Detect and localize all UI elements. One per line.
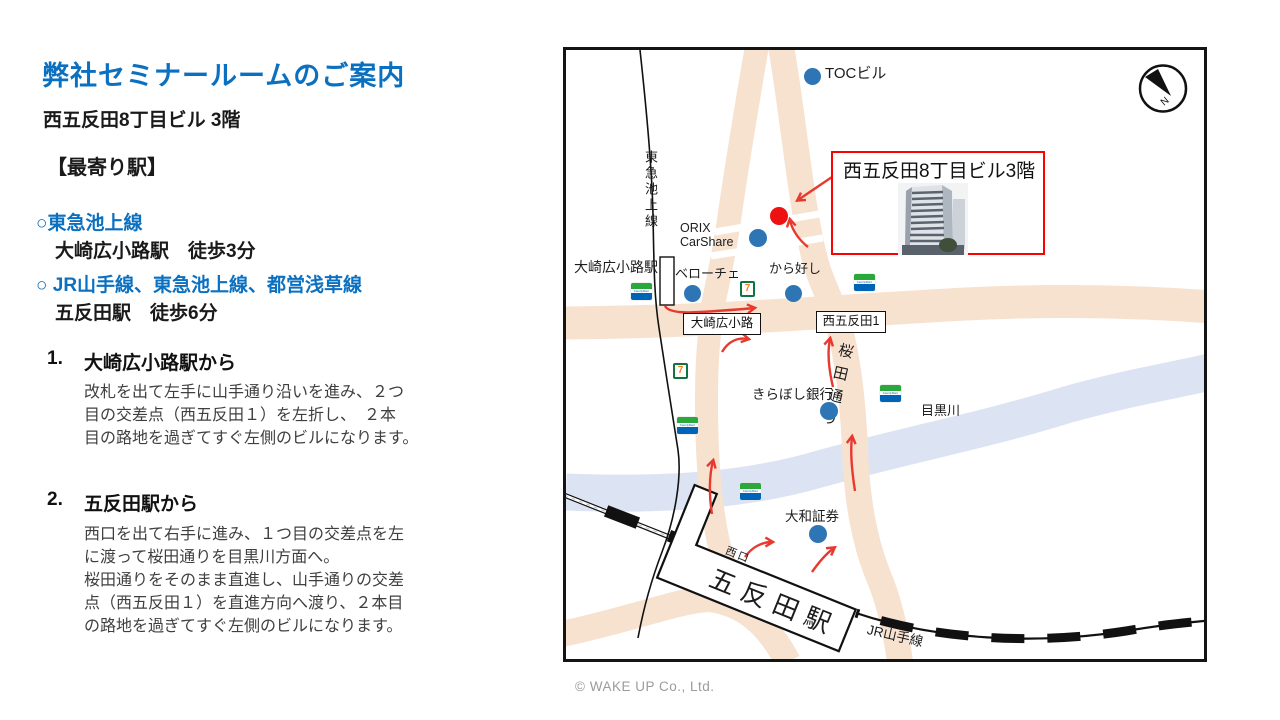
direction-2-line: 点（西五反田１）を直進方向へ渡り、２本目	[84, 592, 404, 615]
osaki-hirokoji-station-label: 大崎広小路駅	[574, 259, 658, 275]
direction-1-line: 目の路地を過ぎてすぐ左側のビルになります。	[84, 427, 418, 450]
direction-1-body: 改札を出て左手に山手通り沿いを進み、２つ 目の交差点（西五反田１）を左折し、 ２…	[84, 381, 418, 450]
seven-eleven-icon: 7	[740, 281, 755, 297]
nearest-station-heading: 【最寄り駅】	[47, 151, 167, 180]
familymart-icon: FamilyMart	[854, 274, 875, 291]
direction-1-heading: 大崎広小路駅から	[84, 348, 236, 375]
compass-icon: N	[1140, 66, 1186, 112]
copyright-text: © WAKE UP Co., Ltd.	[575, 679, 715, 694]
station-detail-1: 大崎広小路駅 徒歩3分	[55, 236, 256, 263]
veloce-label: ベローチェ	[675, 267, 740, 282]
page-title: 弊社セミナールームのご案内	[42, 54, 405, 93]
orix-marker	[749, 229, 767, 247]
osaki-hirokoji-station-box	[660, 257, 674, 305]
station-line-2: ○ JR山手線、東急池上線、都営浅草線	[36, 270, 362, 297]
seven-eleven-icon: 7	[673, 363, 688, 379]
familymart-icon: FamilyMart	[677, 417, 698, 434]
direction-1-line: 改札を出て左手に山手通り沿いを進み、２つ	[84, 381, 418, 404]
building-name: 西五反田8丁目ビル 3階	[43, 105, 240, 132]
veloce-marker	[684, 285, 701, 302]
osaki-hirokoji-crossing-sign: 大崎広小路	[683, 313, 761, 335]
direction-2-body: 西口を出て右手に進み、１つ目の交差点を左 に渡って桜田通りを目黒川方面へ。 桜田…	[84, 523, 404, 638]
direction-2-number: 2.	[47, 489, 63, 511]
orix-carshare-label: ORIX CarShare	[680, 221, 734, 250]
karayoshi-label: から好し	[769, 262, 821, 277]
nishigotanda1-crossing-sign: 西五反田1	[816, 311, 886, 333]
access-map: N 西五反田8丁目ビル3階	[563, 47, 1207, 662]
direction-2-line: に渡って桜田通りを目黒川方面へ。	[84, 546, 404, 569]
direction-1-line: 目の交差点（西五反田１）を左折し、 ２本	[84, 404, 418, 427]
destination-callout: 西五反田8丁目ビル3階	[831, 151, 1045, 255]
map-drawing: N	[566, 50, 1204, 659]
toc-building-label: TOCビル	[825, 65, 886, 82]
direction-2-line: 桜田通りをそのまま直進し、山手通りの交差	[84, 569, 404, 592]
station-line-1: ○東急池上線	[36, 208, 142, 235]
karayoshi-marker	[785, 285, 802, 302]
destination-photo	[898, 183, 968, 255]
direction-2-line: の路地を過ぎてすぐ左側のビルになります。	[84, 615, 404, 638]
tokyu-ikegami-line-label: 東急池上線	[642, 150, 657, 230]
toc-marker	[804, 68, 821, 85]
direction-2-heading: 五反田駅から	[84, 489, 198, 516]
kiraboshi-bank-label: きらぼし銀行	[752, 387, 833, 403]
meguro-river-label: 目黒川	[921, 404, 960, 419]
kiraboshi-marker	[820, 402, 838, 420]
daiwa-marker	[809, 525, 827, 543]
destination-label: 西五反田8丁目ビル3階	[833, 153, 1043, 183]
daiwa-securities-label: 大和証券	[785, 509, 839, 525]
familymart-icon: FamilyMart	[880, 385, 901, 402]
direction-2-line: 西口を出て右手に進み、１つ目の交差点を左	[84, 523, 404, 546]
familymart-icon: FamilyMart	[631, 283, 652, 300]
direction-1-number: 1.	[47, 348, 63, 370]
station-detail-2: 五反田駅 徒歩6分	[55, 298, 218, 325]
familymart-icon: FamilyMart	[740, 483, 761, 500]
destination-marker	[770, 207, 788, 225]
